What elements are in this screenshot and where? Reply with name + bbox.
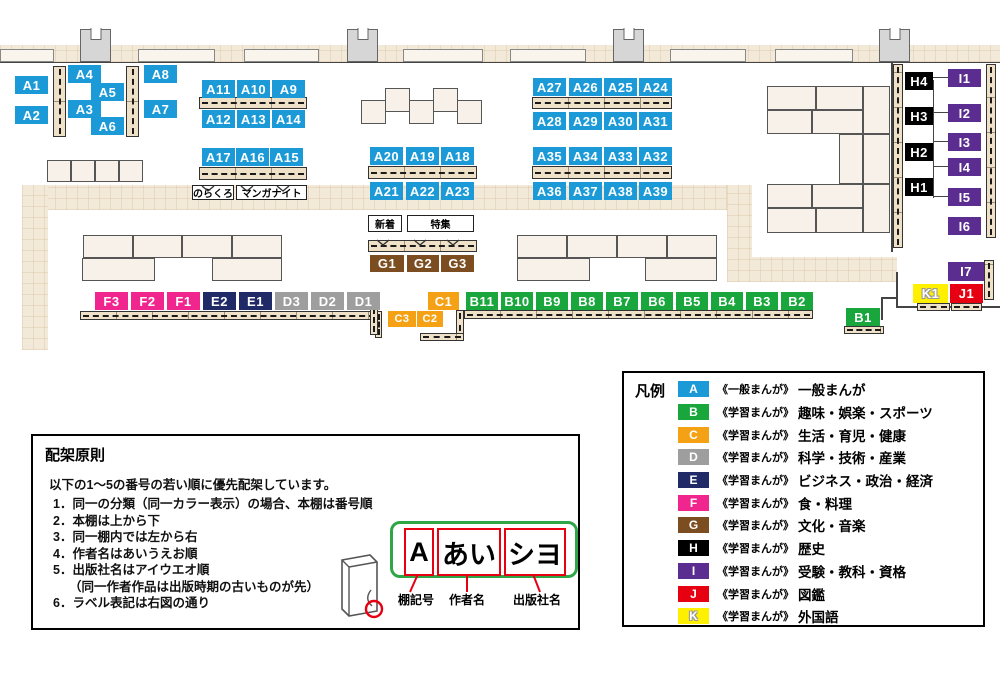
bookshelf [368, 166, 477, 179]
legend-chip-d: D [678, 449, 709, 465]
shelf-label-b6: B6 [641, 292, 673, 310]
wall-line [0, 62, 1000, 63]
legend-category: 科学・技術・産業 [798, 447, 906, 467]
table-block [433, 88, 458, 112]
shelf-connector [240, 179, 254, 186]
wall-line [881, 297, 897, 299]
shelf-label-b9: B9 [536, 292, 568, 310]
shelf-label-a35: A35 [533, 147, 566, 165]
legend-row-a: A《一般まんが》一般まんが [678, 378, 933, 401]
shelf-label-i5: I5 [948, 188, 981, 206]
principle-item-3: 3．同一棚内では左から右 [53, 529, 383, 546]
legend-type: 《学習まんが》 [717, 563, 794, 579]
shelf-label-b8: B8 [571, 292, 603, 310]
legend-chip-b: B [678, 404, 709, 420]
shelf-label-a28: A28 [533, 112, 566, 130]
shelf-label-b11: B11 [466, 292, 498, 310]
shelf-label-i3: I3 [948, 133, 981, 151]
shelf-label-a12: A12 [202, 110, 235, 128]
bookshelf [199, 97, 307, 109]
shelf-label-b2: B2 [781, 292, 813, 310]
legend-chip-j: J [678, 586, 709, 602]
shelf-label-e1: E1 [239, 292, 272, 310]
table-block [617, 235, 667, 258]
bookshelf [984, 260, 994, 300]
table-block [767, 184, 812, 208]
shelf-connector [446, 233, 460, 240]
bookshelf [532, 166, 672, 179]
legend-category: 文化・音楽 [798, 515, 866, 535]
shelf-label-d1: D1 [347, 292, 380, 310]
shelf-label-i1: I1 [948, 69, 981, 87]
shelf-label-a7: A7 [144, 100, 177, 118]
table-block [863, 134, 890, 184]
wall-line [933, 196, 948, 197]
table-block [839, 134, 863, 184]
shelf-label-a17: A17 [202, 148, 235, 166]
bookshelf [420, 333, 464, 341]
bookshelf [893, 64, 903, 248]
legend-chip-h: H [678, 540, 709, 556]
shelf-label-a37: A37 [569, 182, 602, 200]
legend-category: 図鑑 [798, 584, 825, 604]
table-block [517, 258, 590, 281]
shelf-label-a30: A30 [604, 112, 637, 130]
table-block [385, 88, 410, 112]
legend-type: 《学習まんが》 [717, 449, 794, 465]
table-block [812, 184, 863, 208]
shelf-label-i7: I7 [948, 262, 984, 281]
table-block [767, 208, 816, 233]
wall-segment [670, 49, 746, 62]
pillar [80, 29, 111, 62]
table-block [361, 100, 386, 124]
shelf-label-a8: A8 [144, 65, 177, 83]
pillar [879, 29, 910, 62]
legend-row-j: J《学習まんが》図鑑 [678, 582, 933, 605]
legend-category: 歴史 [798, 538, 825, 558]
legend-chip-g: G [678, 517, 709, 533]
legend-type: 《学習まんが》 [717, 404, 794, 420]
shelf-label-a19: A19 [406, 147, 439, 165]
table-block [409, 100, 434, 124]
spine-shelf-code: A [404, 528, 434, 576]
shelf-label-a5: A5 [91, 83, 124, 101]
bookshelf [456, 310, 464, 334]
legend-chip-a: A [678, 381, 709, 397]
shelf-label-b1: B1 [846, 308, 880, 326]
wall-line [933, 141, 948, 142]
shelf-label-g2: G2 [407, 255, 439, 272]
walkway [727, 257, 897, 282]
shelf-label-a39: A39 [639, 182, 672, 200]
table-block [133, 235, 182, 258]
shelf-label-a36: A36 [533, 182, 566, 200]
shelf-label-a24: A24 [639, 78, 672, 96]
shelf-label-i2: I2 [948, 104, 981, 122]
shelf-label-a32: A32 [639, 147, 672, 165]
shelf-label-a4: A4 [68, 65, 101, 83]
legend-chip-f: F [678, 495, 709, 511]
shelf-label-a27: A27 [533, 78, 566, 96]
shelf-label-b4: B4 [711, 292, 743, 310]
principles-intro: 以下の1～5の番号の若い順に優先配架しています。 [49, 474, 336, 493]
legend-type: 《学習まんが》 [717, 586, 794, 602]
shelf-label-a1: A1 [15, 76, 48, 94]
table-block [212, 258, 282, 281]
shelf-connector [276, 179, 290, 186]
table-block [182, 235, 232, 258]
wall-segment [403, 49, 483, 62]
callout-author: 作者名 [449, 591, 485, 608]
shelf-connector [376, 233, 390, 240]
shelf-label-a16: A16 [236, 148, 269, 166]
table-block [863, 86, 890, 134]
legend-type: 《学習まんが》 [717, 427, 794, 443]
shelf-label-k1: K1 [913, 284, 948, 303]
table-block [667, 235, 717, 258]
shelf-label-a9: A9 [272, 80, 305, 98]
floor-map-page: A1A2A4A5A3A6A8A7A11A10A9A12A13A14A17A16A… [0, 0, 1000, 700]
shelf-label-a25: A25 [604, 78, 637, 96]
shelf-label-a13: A13 [237, 110, 270, 128]
legend-row-f: F《学習まんが》食・料理 [678, 491, 933, 514]
table-block [47, 160, 71, 182]
shelf-label-a6: A6 [91, 117, 124, 135]
legend-row-g: G《学習まんが》文化・音楽 [678, 514, 933, 537]
shelf-label-a14: A14 [272, 110, 305, 128]
shelf-label-h3: H3 [905, 107, 933, 125]
legend-row-b: B《学習まんが》趣味・娯楽・スポーツ [678, 401, 933, 424]
legend-category: 外国語 [798, 606, 839, 626]
annotation-new-arrivals: 新着 [368, 215, 402, 232]
shelf-label-a26: A26 [569, 78, 602, 96]
legend-category: 受験・教科・資格 [798, 561, 906, 581]
annotation-feature: 特集 [407, 215, 474, 232]
bookshelf [126, 66, 139, 137]
shelf-label-a10: A10 [237, 80, 270, 98]
shelf-label-i6: I6 [948, 217, 981, 235]
legend-chip-i: I [678, 563, 709, 579]
shelf-label-a2: A2 [15, 106, 48, 124]
legend-chip-c: C [678, 427, 709, 443]
shelving-principles-panel: 配架原則 以下の1～5の番号の若い順に優先配架しています。 1．同一の分類（同一… [31, 434, 580, 630]
callout-shelf-code: 棚記号 [398, 591, 434, 608]
shelf-label-d3: D3 [275, 292, 308, 310]
shelf-label-f2: F2 [131, 292, 164, 310]
wall-line [933, 166, 948, 167]
shelf-label-e2: E2 [203, 292, 236, 310]
legend-chip-k: K [678, 608, 709, 624]
shelf-label-c2: C2 [417, 311, 443, 327]
wall-segment [775, 49, 853, 62]
shelf-label-f3: F3 [95, 292, 128, 310]
legend-row-e: E《学習まんが》ビジネス・政治・経済 [678, 469, 933, 492]
table-block [82, 258, 155, 281]
table-block [71, 160, 95, 182]
shelf-label-j1: J1 [950, 284, 983, 303]
shelf-label-a38: A38 [604, 182, 637, 200]
shelf-label-c3: C3 [388, 311, 416, 327]
bookshelf [532, 97, 672, 109]
legend-title: 凡例 [635, 380, 665, 401]
pillar [613, 29, 644, 62]
legend-category: ビジネス・政治・経済 [798, 470, 933, 490]
legend-row-c: C《学習まんが》生活・育児・健康 [678, 423, 933, 446]
table-block [517, 235, 567, 258]
table-block [567, 235, 617, 258]
walkway [22, 185, 48, 350]
wall-line [881, 297, 883, 320]
table-block [863, 184, 890, 233]
spine-author: あい [437, 528, 501, 576]
shelf-label-a20: A20 [370, 147, 403, 165]
table-block [812, 110, 863, 134]
wall-segment [138, 49, 215, 62]
wall-line [933, 80, 934, 198]
legend-type: 《学習まんが》 [717, 472, 794, 488]
shelf-label-b3: B3 [746, 292, 778, 310]
table-block [83, 235, 133, 258]
legend-row-k: K《学習まんが》外国語 [678, 605, 933, 628]
table-block [457, 100, 482, 124]
bookshelf [53, 66, 66, 137]
shelf-label-a33: A33 [604, 147, 637, 165]
table-block [767, 110, 812, 134]
shelf-label-g3: G3 [441, 255, 474, 272]
shelf-label-h4: H4 [905, 72, 933, 90]
shelf-label-a22: A22 [406, 182, 439, 200]
legend-category: 趣味・娯楽・スポーツ [798, 402, 933, 422]
shelf-label-a34: A34 [569, 147, 602, 165]
table-block [95, 160, 119, 182]
legend-type: 《学習まんが》 [717, 495, 794, 511]
bookshelf [464, 310, 813, 319]
principle-item-2: 2．本棚は上から下 [53, 513, 383, 530]
wall-segment [244, 49, 319, 62]
legend-panel: 凡例 A《一般まんが》一般まんがB《学習まんが》趣味・娯楽・スポーツC《学習まん… [622, 371, 985, 627]
callout-publisher: 出版社名 [513, 591, 561, 608]
wall-segment [0, 49, 54, 62]
shelf-label-a15: A15 [270, 148, 303, 166]
shelf-label-a3: A3 [68, 100, 101, 118]
principles-title: 配架原則 [45, 444, 105, 465]
spine-publisher: シヨ [504, 528, 566, 576]
table-block [645, 258, 717, 281]
shelf-label-i4: I4 [948, 158, 981, 176]
shelf-label-c1: C1 [428, 292, 459, 310]
shelf-label-a21: A21 [370, 182, 403, 200]
legend-type: 《一般まんが》 [717, 381, 794, 397]
shelf-label-h1: H1 [905, 178, 933, 196]
shelf-label-a23: A23 [441, 182, 474, 200]
legend-category: 生活・育児・健康 [798, 425, 906, 445]
shelf-connector [413, 233, 427, 240]
wall-segment [510, 49, 586, 62]
shelf-label-a29: A29 [569, 112, 602, 130]
bookshelf [951, 303, 982, 311]
table-block [816, 86, 863, 110]
principle-item-1: 1．同一の分類（同一カラー表示）の場合、本棚は番号順 [53, 496, 383, 513]
table-block [767, 86, 816, 110]
legend-category: 食・料理 [798, 493, 852, 513]
legend-category: 一般まんが [798, 379, 866, 399]
book-icon [333, 552, 387, 622]
shelf-label-a11: A11 [202, 80, 235, 98]
legend-row-h: H《学習まんが》歴史 [678, 537, 933, 560]
shelf-label-a18: A18 [441, 147, 474, 165]
shelf-label-b10: B10 [501, 292, 533, 310]
wall-line [896, 272, 898, 308]
legend-row-d: D《学習まんが》科学・技術・産業 [678, 446, 933, 469]
shelf-connector [201, 179, 215, 186]
shelf-label-h2: H2 [905, 143, 933, 161]
legend-type: 《学習まんが》 [717, 517, 794, 533]
table-block [232, 235, 282, 258]
legend-rows: A《一般まんが》一般まんがB《学習まんが》趣味・娯楽・スポーツC《学習まんが》生… [678, 378, 933, 628]
table-block [816, 208, 863, 233]
pillar [347, 29, 378, 62]
legend-chip-e: E [678, 472, 709, 488]
shelf-label-g1: G1 [370, 255, 404, 272]
legend-type: 《学習まんが》 [717, 540, 794, 556]
bookshelf [986, 64, 996, 238]
legend-row-i: I《学習まんが》受験・教科・資格 [678, 560, 933, 583]
shelf-label-b7: B7 [606, 292, 638, 310]
legend-type: 《学習まんが》 [717, 608, 794, 624]
wall-line [933, 77, 948, 78]
table-block [119, 160, 143, 182]
bookshelf [80, 311, 378, 320]
shelf-label-b5: B5 [676, 292, 708, 310]
shelf-label-a31: A31 [639, 112, 672, 130]
wall-line [933, 112, 948, 113]
spine-label-diagram: A あい シヨ [390, 521, 578, 578]
shelf-label-d2: D2 [311, 292, 344, 310]
bookshelf [917, 303, 950, 311]
bookshelf [844, 326, 884, 334]
shelf-label-f1: F1 [167, 292, 200, 310]
